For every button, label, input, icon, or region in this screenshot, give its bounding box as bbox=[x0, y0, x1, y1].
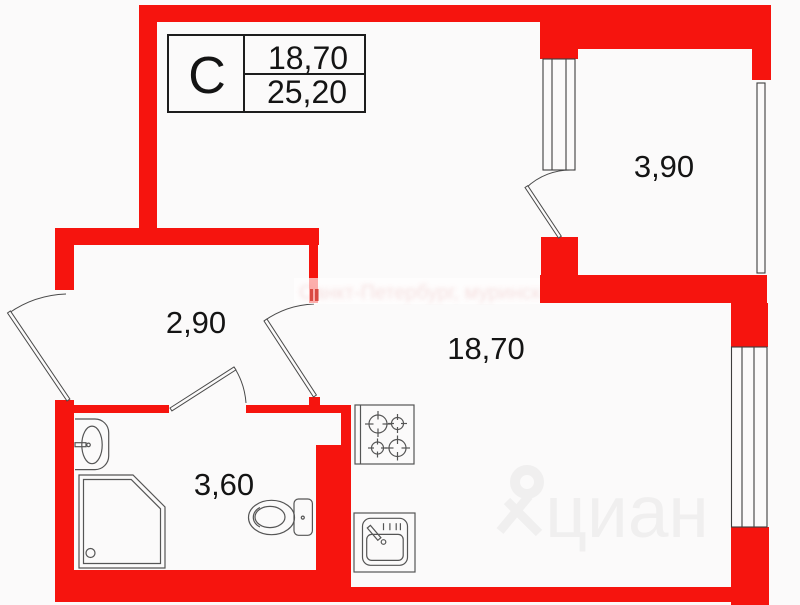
svg-text:циан: циан bbox=[545, 472, 709, 553]
svg-text:С: С bbox=[188, 47, 226, 105]
svg-text:2,90: 2,90 bbox=[166, 305, 226, 340]
svg-text:3,60: 3,60 bbox=[194, 467, 254, 502]
svg-text:18,70: 18,70 bbox=[447, 331, 525, 366]
svg-text:25,20: 25,20 bbox=[267, 74, 347, 110]
svg-text:18,70: 18,70 bbox=[268, 40, 348, 76]
svg-text:3,90: 3,90 bbox=[634, 149, 694, 184]
